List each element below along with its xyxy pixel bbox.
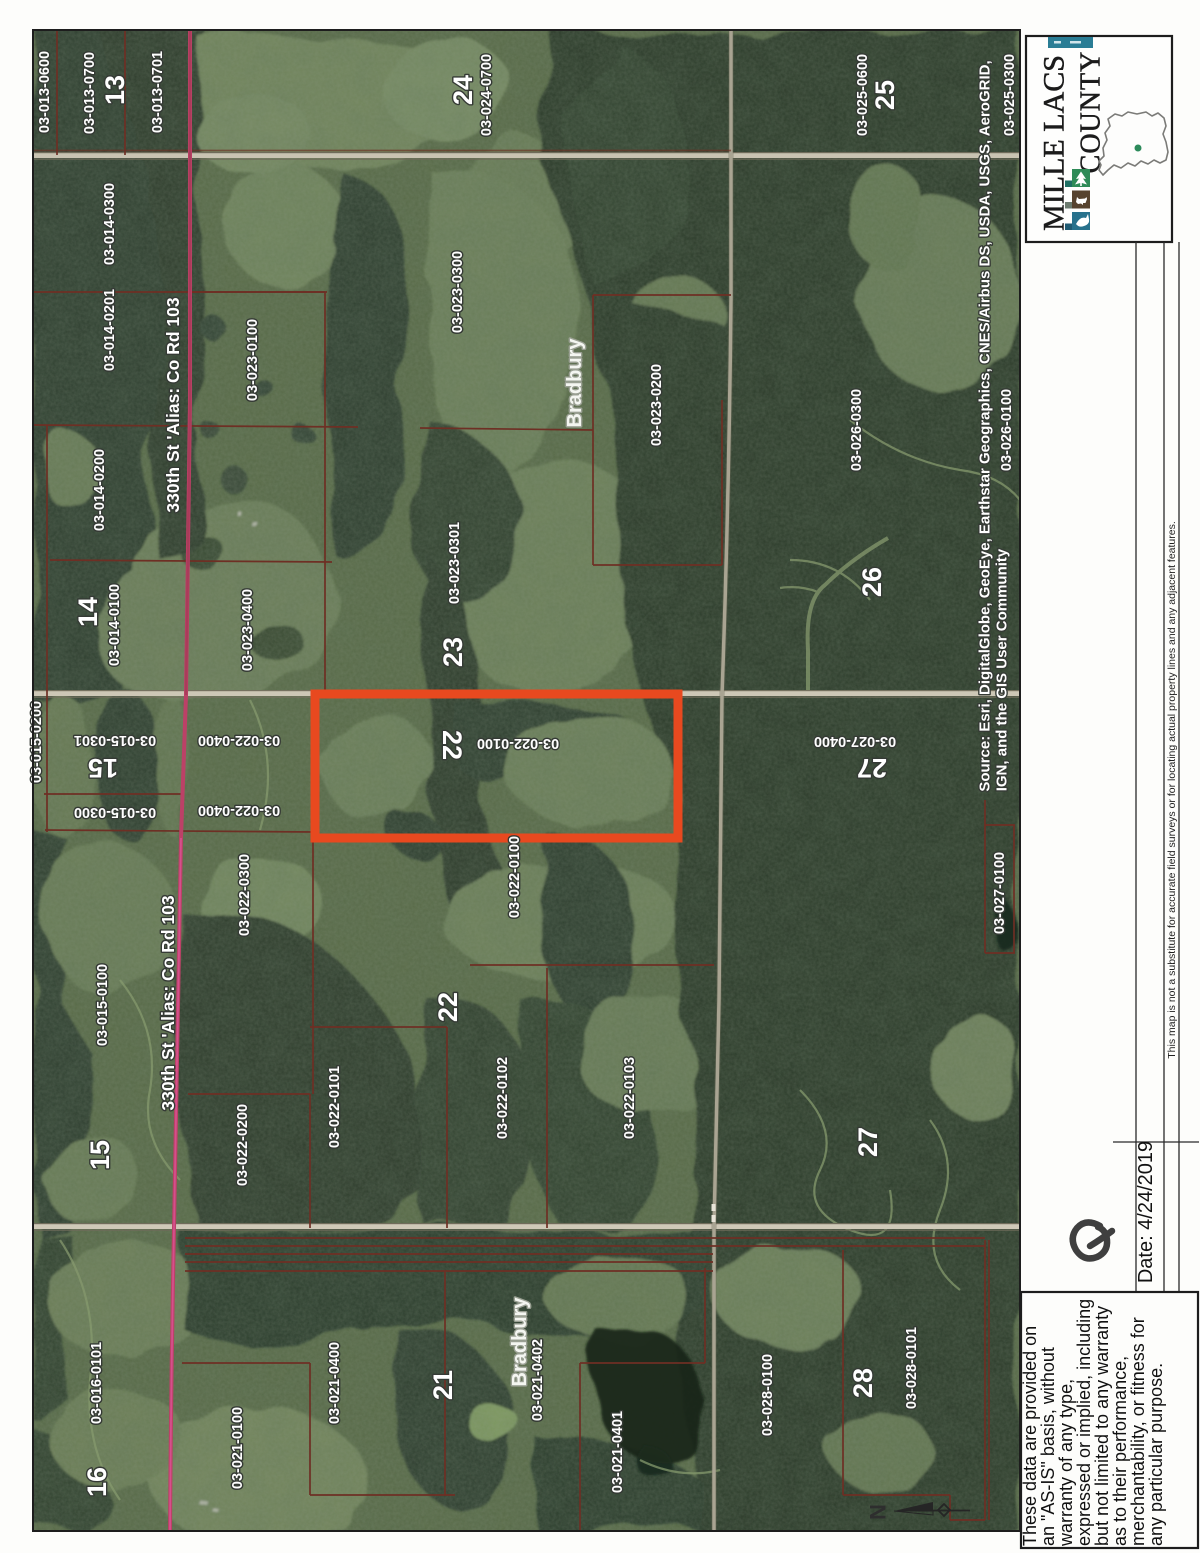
svg-text:03-022-0200: 03-022-0200 [235, 1104, 251, 1186]
svg-text:03-021-0100: 03-021-0100 [230, 1407, 246, 1489]
svg-text:03-026-0300: 03-026-0300 [849, 389, 865, 471]
svg-text:03-022-0101: 03-022-0101 [327, 1066, 343, 1148]
svg-text:14: 14 [73, 597, 103, 627]
svg-text:COUNTY: COUNTY [1076, 51, 1107, 174]
svg-text:IGN, and the GIS User Communit: IGN, and the GIS User Community [994, 548, 1011, 791]
svg-text:03-014-0300: 03-014-0300 [102, 183, 118, 265]
svg-text:03-022-0100: 03-022-0100 [507, 836, 523, 918]
svg-text:15: 15 [88, 753, 118, 783]
svg-text:Date: 4/24/2019: Date: 4/24/2019 [1135, 1141, 1157, 1283]
svg-text:03-022-0102: 03-022-0102 [495, 1057, 511, 1139]
svg-text:03-025-0600: 03-025-0600 [855, 54, 871, 136]
svg-text:expressed or implied, includin: expressed or implied, including [1074, 1299, 1094, 1546]
svg-text:23: 23 [438, 637, 468, 667]
svg-text:N: N [866, 1504, 891, 1520]
svg-text:03-023-0301: 03-023-0301 [447, 522, 463, 604]
svg-text:03-026-0100: 03-026-0100 [999, 389, 1015, 471]
svg-text:03-021-0401: 03-021-0401 [610, 1411, 626, 1493]
svg-text:03-023-0400: 03-023-0400 [240, 589, 256, 671]
svg-text:03-016-0101: 03-016-0101 [89, 1342, 105, 1424]
svg-text:03-023-0100: 03-023-0100 [245, 319, 261, 401]
svg-text:16: 16 [82, 1467, 112, 1497]
svg-text:03-023-0300: 03-023-0300 [450, 251, 466, 333]
svg-text:03-021-0402: 03-021-0402 [530, 1339, 546, 1421]
svg-text:03-015-0301: 03-015-0301 [74, 732, 156, 748]
svg-text:03-022-0400: 03-022-0400 [198, 802, 280, 818]
svg-text:03-024-0700: 03-024-0700 [479, 54, 495, 136]
svg-text:as to their performance,: as to their performance, [1110, 1356, 1130, 1546]
svg-text:03-014-0100: 03-014-0100 [107, 584, 123, 666]
svg-text:03-013-0600: 03-013-0600 [37, 51, 53, 133]
svg-text:These data are provided on: These data are provided on [1020, 1326, 1040, 1546]
svg-text:03-013-0700: 03-013-0700 [82, 52, 98, 134]
svg-text:03-022-0103: 03-022-0103 [622, 1057, 638, 1139]
svg-text:03-014-0201: 03-014-0201 [102, 289, 118, 371]
svg-text:03-013-0701: 03-013-0701 [150, 51, 166, 133]
svg-text:03-015-0100: 03-015-0100 [95, 964, 111, 1046]
svg-text:15: 15 [85, 1140, 115, 1170]
svg-text:This map is not a substitute f: This map is not a substitute for accurat… [1166, 521, 1178, 1059]
svg-text:warranty of any type,: warranty of any type, [1056, 1379, 1076, 1547]
svg-text:13: 13 [100, 75, 130, 105]
svg-text:03-014-0200: 03-014-0200 [92, 449, 108, 531]
svg-text:but not limited to any warrant: but not limited to any warranty [1092, 1306, 1112, 1546]
svg-text:26: 26 [857, 567, 887, 597]
svg-text:27: 27 [853, 1127, 883, 1157]
svg-text:Source: Esri, DigitalGlobe, Ge: Source: Esri, DigitalGlobe, GeoEye, Eart… [977, 60, 994, 791]
svg-text:03-022-0300: 03-022-0300 [237, 854, 253, 936]
svg-text:Bradbury: Bradbury [564, 338, 586, 428]
svg-text:27: 27 [857, 753, 887, 783]
svg-text:03-027-0100: 03-027-0100 [992, 852, 1008, 934]
svg-text:03-021-0400: 03-021-0400 [327, 1342, 343, 1424]
svg-text:Bradbury: Bradbury [509, 1297, 531, 1387]
svg-text:03-025-0300: 03-025-0300 [1002, 54, 1018, 136]
svg-text:330th St 'Alias: Co Rd 103: 330th St 'Alias: Co Rd 103 [163, 297, 183, 512]
svg-text:an "AS-IS" basis, without: an "AS-IS" basis, without [1038, 1347, 1058, 1546]
svg-text:03-028-0101: 03-028-0101 [904, 1327, 920, 1409]
svg-text:21: 21 [428, 1370, 458, 1400]
svg-text:28: 28 [848, 1368, 878, 1398]
svg-text:22: 22 [433, 992, 463, 1022]
svg-text:03-022-0100: 03-022-0100 [477, 735, 559, 751]
svg-text:03-023-0200: 03-023-0200 [649, 364, 665, 446]
svg-text:03-028-0100: 03-028-0100 [760, 1354, 776, 1436]
svg-text:330th St 'Alias: Co Rd 103: 330th St 'Alias: Co Rd 103 [158, 895, 178, 1110]
svg-text:24: 24 [448, 75, 478, 105]
svg-text:any particular purpose.: any particular purpose. [1146, 1363, 1166, 1546]
svg-text:merchantability, or fitness fo: merchantability, or fitness for [1128, 1317, 1148, 1546]
svg-text:03-022-0400: 03-022-0400 [198, 732, 280, 748]
svg-text:03-015-0300: 03-015-0300 [74, 804, 156, 820]
svg-text:03-027-0400: 03-027-0400 [814, 733, 896, 749]
svg-text:03-015-0200: 03-015-0200 [29, 701, 45, 783]
svg-text:22: 22 [437, 730, 467, 760]
svg-text:25: 25 [870, 80, 900, 110]
